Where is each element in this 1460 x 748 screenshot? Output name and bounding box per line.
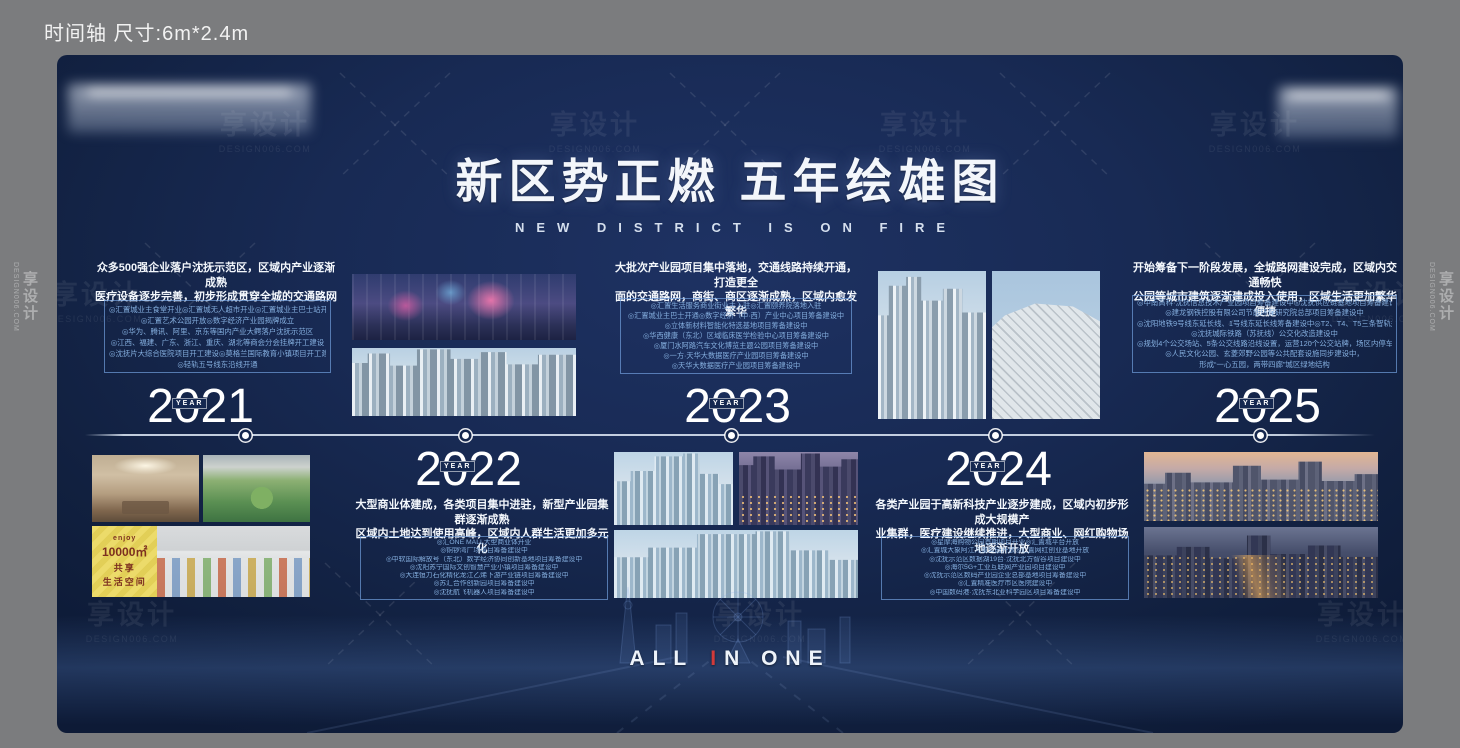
- watermark-right-edge: 享设计 DESIGN006.COM: [1428, 262, 1456, 332]
- photo-render-residential-towers: [878, 271, 986, 419]
- watermark-brand: 享设计: [1437, 271, 1454, 322]
- watermark-site: DESIGN006.COM: [12, 262, 19, 332]
- milestone-line: ◎中国数码港·沈抚东北亚科学园区项目筹备建设中: [886, 589, 1124, 597]
- photo-row: [614, 452, 858, 525]
- milestone-line: ◎华西健康（东北）区域临床医学检验中心项目筹备建设中: [625, 331, 847, 341]
- timeline-dot-2023: [728, 432, 735, 439]
- photo-aerial-city-dusk: [1144, 452, 1378, 521]
- brand-logo-right-blurred: [1278, 87, 1398, 138]
- timeline-dot-2024: [992, 432, 999, 439]
- milestone-line: ◎汇置生活服务商业街业主入驻◎汇置颐养院落地入驻: [625, 301, 847, 311]
- milestone-line: ◎海尔5G+工业互联网产业园项目建设中: [886, 564, 1124, 572]
- milestone-line: ◎轻轨五号线东沿线开通: [109, 359, 326, 370]
- milestone-line: ◎星摩海购物公园首期项目开业◎汇置城平台开放: [886, 539, 1124, 547]
- headline-line: 大批次产业园项目集中落地，交通线路持续开通，打造更全: [613, 261, 859, 290]
- milestone-line: ◎建龙钢铁控股有限公司节能环保研究院总部项目筹备建设中: [1137, 308, 1392, 318]
- poster-title: 新区势正燃 五年绘雄图: [57, 143, 1403, 212]
- headline-line: 各类产业园于高新科技产业逐步建成，区域内初步形成大规模产: [873, 498, 1131, 527]
- milestone-line: ◎汇ONE MALL大型商业体开业: [365, 539, 603, 547]
- photo-render-art-installation: [352, 274, 576, 340]
- milestone-line: ◎人民文化公园、玄菱郊野公园等公共配套设施同步建设中，: [1137, 349, 1392, 359]
- poster-subtitle: NEW DISTRICT IS ON FIRE: [63, 220, 1403, 235]
- slogan-part: N ONE: [724, 647, 831, 670]
- photo-row: [92, 455, 310, 522]
- milestone-line: ◎沈抚示范区数据湖19台·沈抚北方智谷项目建设中: [886, 556, 1124, 564]
- year-2021: 2021 YEAR: [138, 379, 263, 434]
- year-2023: 2023 YEAR: [675, 379, 800, 434]
- year-chip: YEAR: [440, 461, 475, 472]
- milestone-line: ◎华为、腾讯、阿里、京东等国内产业大鳄落户沈抚示范区: [109, 326, 326, 337]
- slogan-part: ALL: [629, 647, 694, 670]
- photo-community-market: enjoy 10000㎡ 共享 生活空间: [92, 526, 310, 597]
- milestone-line: ◎汇置艺术公园开放◎数字经济产业园揭牌成立: [109, 315, 326, 326]
- slogan-all-in-one: ALLIN ONE: [57, 647, 1403, 671]
- year-chip: YEAR: [970, 461, 1005, 472]
- watermark-brand: 享设计: [21, 271, 38, 322]
- year-2022: 2022 YEAR: [406, 442, 531, 497]
- watermark-left-edge: 享设计 DESIGN006.COM: [12, 262, 40, 332]
- timeline-dot-2021: [242, 432, 249, 439]
- milestone-line: ◎厦门水阿路汽车文化博览主题公园项目筹备建设中: [625, 341, 847, 351]
- market-store-interior: [157, 526, 310, 597]
- milestone-line: ◎中软国际解放号（东北）数字经济协同创新基地项目筹备建设中: [365, 556, 603, 564]
- milestone-line: ◎汇置城业主食堂开业◎汇置城无人超市开业◎汇置城业主巴士站开通: [109, 304, 326, 315]
- spec-note: 时间轴 尺寸:6m*2.4m: [44, 17, 249, 46]
- milestone-line: ◎江西、福建、广东、浙江、重庆、湖北等商会分会挂牌开工建设: [109, 337, 326, 348]
- market-poster-line: 生活空间: [92, 575, 157, 588]
- slogan-accent-letter: I: [710, 647, 724, 670]
- photo-render-shopping-mall: [992, 271, 1100, 419]
- poster-board: 享设计DESIGN006.COM 享设计DESIGN006.COM 享设计DES…: [57, 55, 1403, 733]
- milestone-line: ◎汇置城业主巴士开通◎数字经济（中·西）产业中心项目筹备建设中: [625, 311, 847, 321]
- milestone-line: ◎汇置城大象阿江儿童公园开放◎汇置网红创业基地开放: [886, 547, 1124, 555]
- brand-logo-left-blurred: [68, 84, 311, 133]
- timeline-dot-2022: [462, 432, 469, 439]
- milestone-line: ◎沈抚片大综合医院项目开工建设◎莫格兰国际教育小镇项目开工建设: [109, 348, 326, 359]
- headline-line: 大型商业体建成，各类项目集中进驻，新型产业园集群逐渐成熟: [353, 498, 611, 527]
- milestones-box-2021: ◎汇置城业主食堂开业◎汇置城无人超市开业◎汇置城业主巴士站开通 ◎汇置艺术公园开…: [104, 300, 331, 373]
- headline-line: 开始筹备下一阶段发展，全城路网建设完成，区域内交通畅快: [1130, 261, 1400, 290]
- photo-aerial-city-night: [1144, 527, 1378, 598]
- market-poster-brand: enjoy: [92, 535, 157, 542]
- milestone-line: ◎天华大数据医疗产业园项目筹备建设中: [625, 361, 847, 371]
- year-2024: 2024 YEAR: [936, 442, 1061, 497]
- milestones-box-2023: ◎汇置生活服务商业街业主入驻◎汇置颐养院落地入驻 ◎汇置城业主巴士开通◎数字经济…: [620, 298, 852, 374]
- milestone-line: ◎铜锣湾广场项目筹备建设中: [365, 547, 603, 555]
- headline-line: 众多500强企业落户沈抚示范区，区域内产业逐渐成熟: [95, 261, 337, 290]
- photo-group-top-right: [878, 271, 1100, 419]
- market-poster-headline: 10000㎡: [92, 543, 157, 560]
- photo-group-top-center: [352, 274, 576, 416]
- milestone-line: ◎一方·天华大数据医疗产业园项目筹备建设中: [625, 351, 847, 361]
- timeline-dot-2025: [1257, 432, 1264, 439]
- photo-render-dusk-street: [739, 452, 858, 525]
- photo-group-bottom-left: enjoy 10000㎡ 共享 生活空间: [92, 455, 310, 597]
- milestone-line: ◎沈抚城际铁路（苏抚线）公交化改造建设中: [1137, 329, 1392, 339]
- milestone-line: 形成“一心五园，两带四廊”城区绿地结构: [1137, 360, 1392, 370]
- logo-text-blur: [1288, 92, 1389, 98]
- photo-aerial-park: [203, 455, 310, 522]
- photo-interior-dining: [92, 455, 199, 522]
- year-2025: 2025 YEAR: [1205, 379, 1330, 434]
- market-poster-line: 共享: [92, 561, 157, 574]
- photo-render-office-tower: [614, 452, 733, 525]
- headline-2021: 众多500强企业落户沈抚示范区，区域内产业逐渐成熟 医疗设备逐步完善，初步形成贯…: [95, 261, 337, 305]
- milestone-line: ◎立体新材料智能化特选基地项目筹备建设中: [625, 321, 847, 331]
- year-chip: YEAR: [1239, 398, 1274, 409]
- milestone-line: ◎中南高科·沈抚信息技术产业园项目筹备建设中◎沈抚供应链基地项目筹备建设中: [1137, 298, 1392, 308]
- photo-group-bottom-right: [1144, 452, 1378, 598]
- year-chip: YEAR: [172, 398, 207, 409]
- milestones-box-2025: ◎中南高科·沈抚信息技术产业园项目筹备建设中◎沈抚供应链基地项目筹备建设中 ◎建…: [1132, 295, 1397, 373]
- milestone-line: ◎汇置精准医疗市区医院建设中: [886, 580, 1124, 588]
- watermark-site: DESIGN006.COM: [1428, 262, 1435, 332]
- photo-render-city-towers: [352, 348, 576, 416]
- year-chip: YEAR: [709, 398, 744, 409]
- milestone-line: ◎沈阳地铁9号线东延长线、1号线东延长线筹备建设中◎T2、T4、T5三条智轨规划…: [1137, 319, 1392, 329]
- milestones-box-2024: ◎星摩海购物公园首期项目开业◎汇置城平台开放 ◎汇置城大象阿江儿童公园开放◎汇置…: [881, 536, 1129, 600]
- market-poster: enjoy 10000㎡ 共享 生活空间: [92, 526, 157, 597]
- milestone-line: ◎沈抚示范区数码产业园企业总部基地项目筹备建设中: [886, 572, 1124, 580]
- logo-text-blur: [87, 89, 291, 95]
- milestone-line: ◎规划4个公交场站、5条公交线路沿线设置，运营120个公交站牌，场区内停车泊位1…: [1137, 339, 1392, 349]
